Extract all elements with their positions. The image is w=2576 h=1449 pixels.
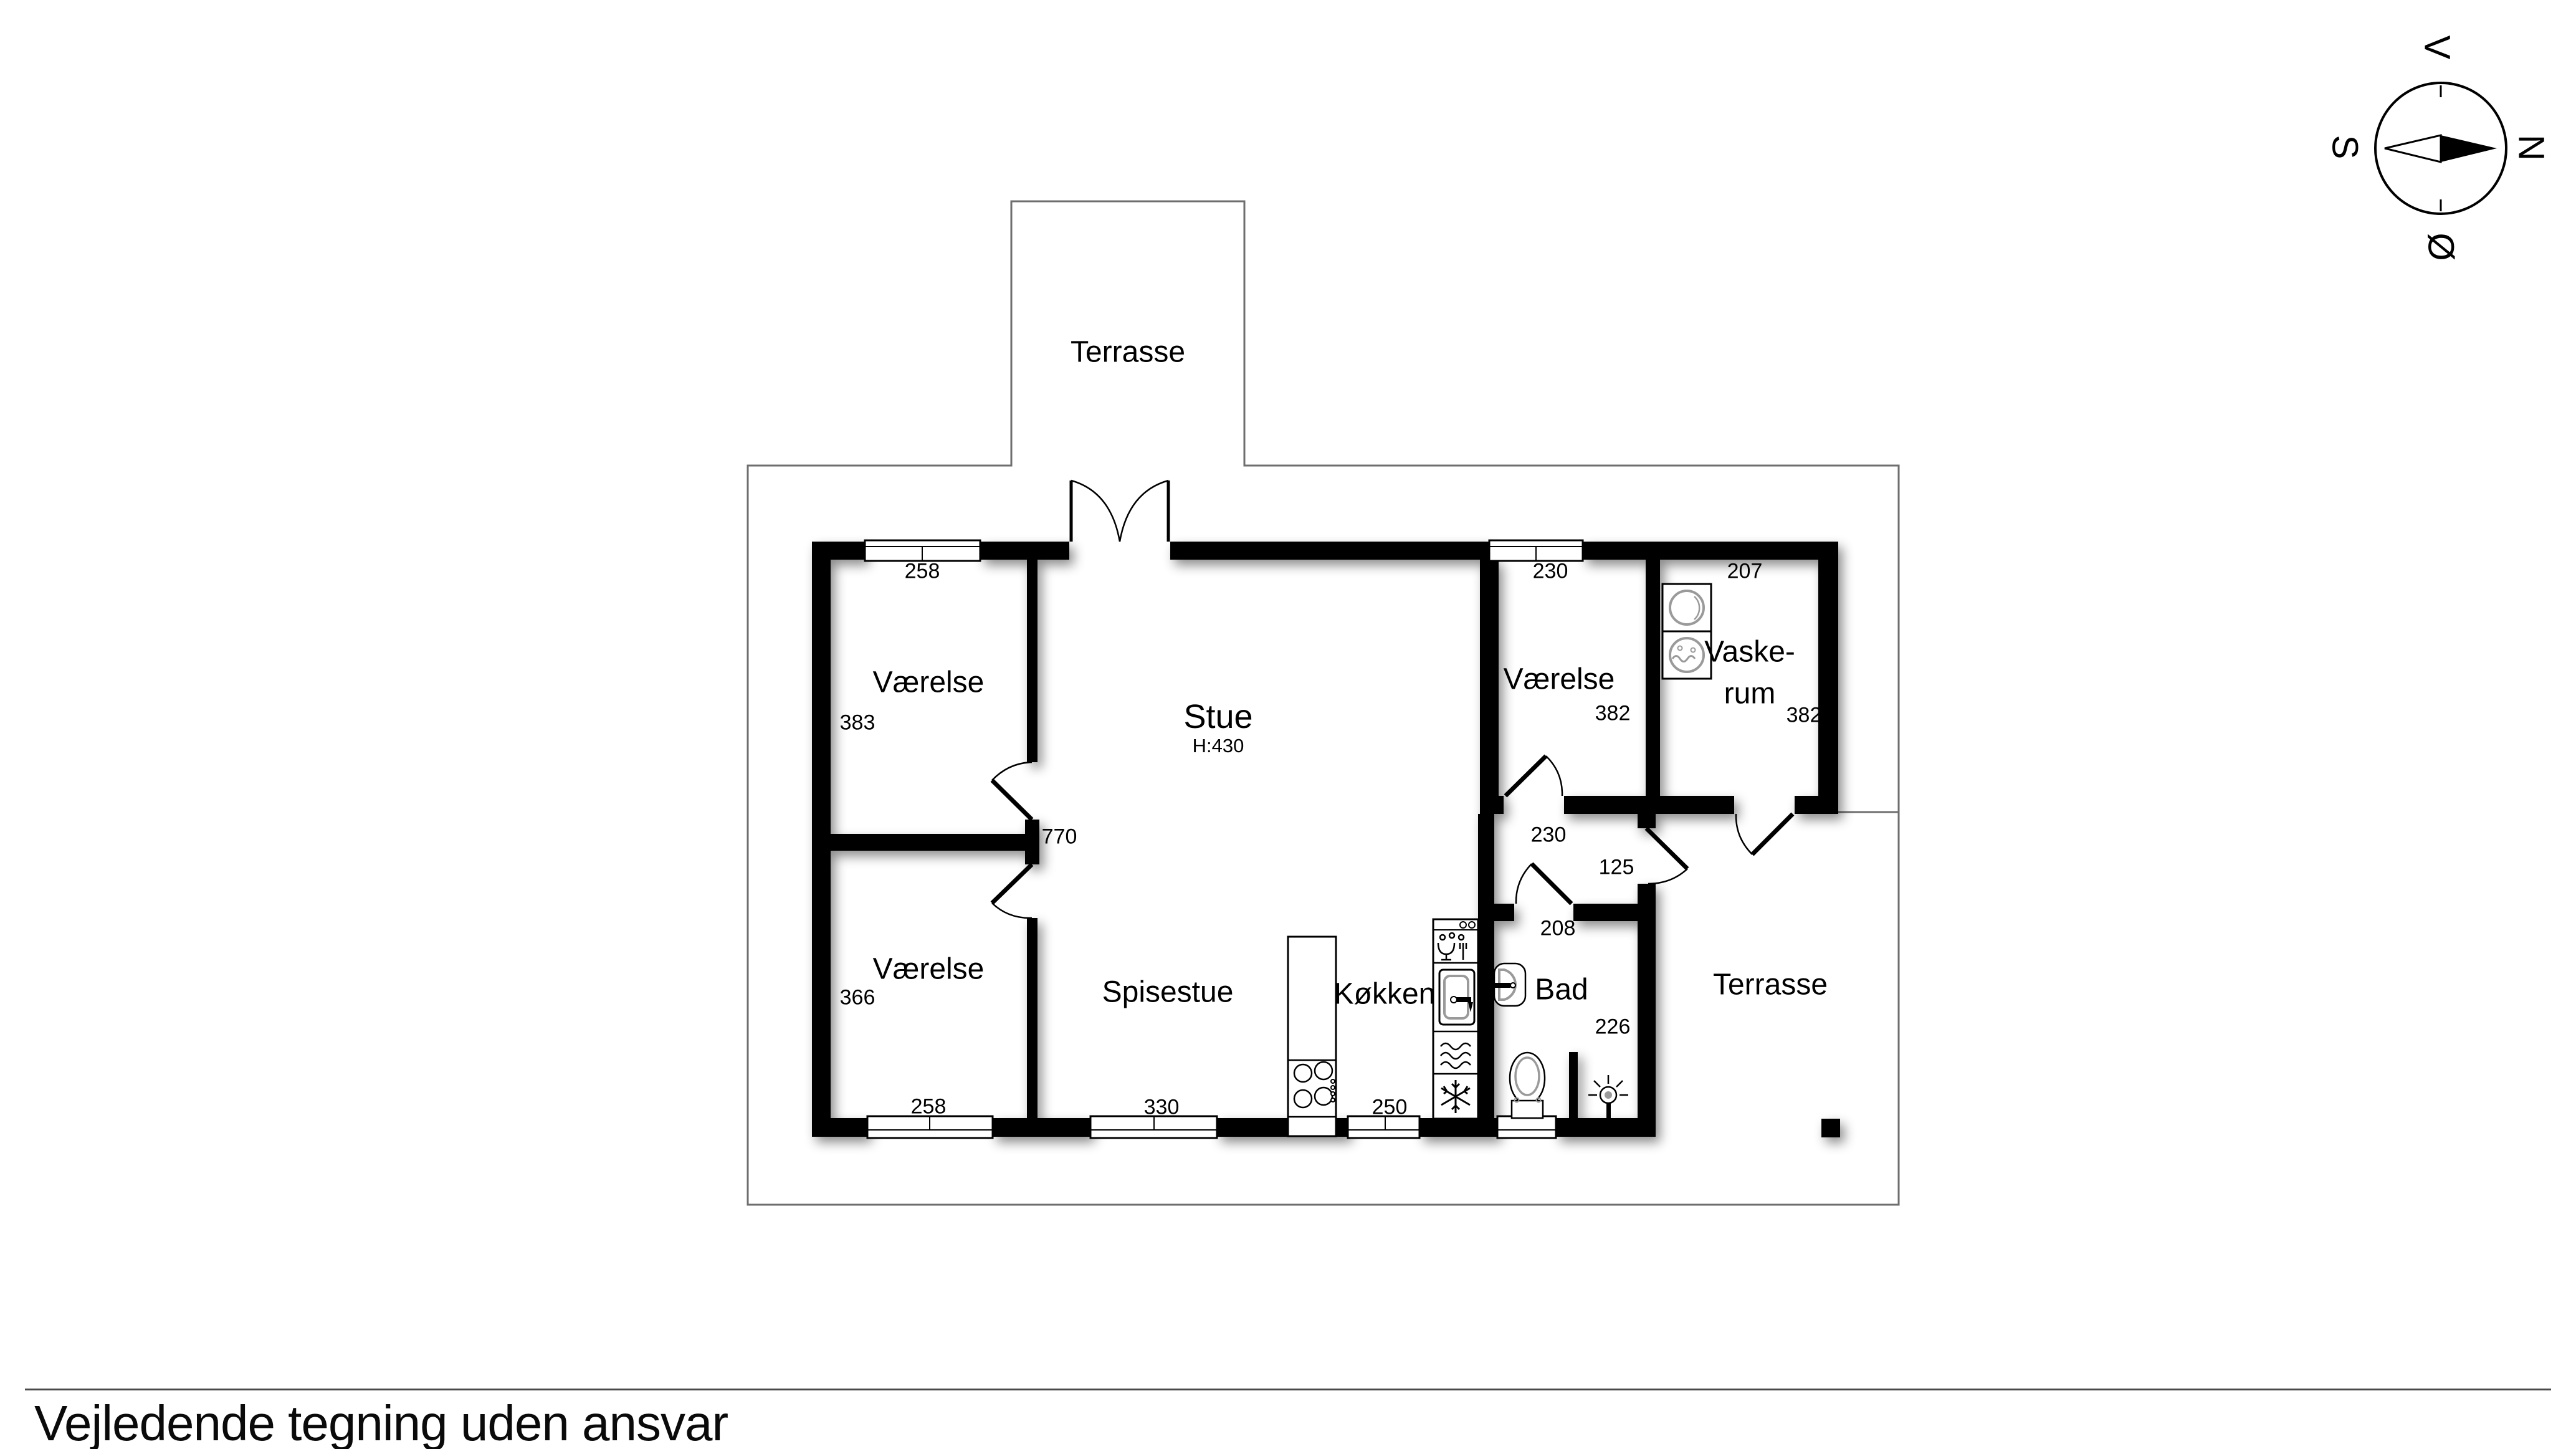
compass-label-north: N — [2511, 135, 2552, 161]
measure-382-laundry: 382 — [1787, 704, 1822, 728]
measure-226: 226 — [1595, 1015, 1631, 1040]
door-bath — [1516, 864, 1572, 904]
label-laundry-line2: rum — [1724, 677, 1776, 711]
footer-divider — [25, 1389, 2551, 1390]
label-bedroom-ne: Værelse — [1504, 662, 1615, 697]
label-terrace-top: Terrasse — [1071, 335, 1185, 370]
label-dining: Spisestue — [1102, 975, 1234, 1010]
measure-250: 250 — [1372, 1096, 1408, 1120]
measure-258-top: 258 — [905, 560, 940, 584]
measure-366: 366 — [840, 986, 875, 1010]
kitchen-island-icon — [1288, 937, 1336, 1136]
door-bedroom-sw — [992, 864, 1032, 918]
terrace-french-doors — [1071, 481, 1168, 542]
door-laundry — [1736, 814, 1793, 854]
measure-383: 383 — [840, 711, 875, 735]
label-bedroom-sw: Værelse — [873, 952, 985, 987]
dryer-icon — [1662, 584, 1711, 631]
shower-partition — [1569, 1052, 1578, 1118]
label-terrace-east: Terrasse — [1713, 968, 1828, 1002]
window-nw — [865, 540, 980, 561]
label-laundry-line1: Vaske- — [1704, 635, 1795, 669]
measure-330: 330 — [1144, 1096, 1180, 1120]
disclaimer-text: Vejledende tegning uden ansvar — [34, 1395, 728, 1449]
compass-label-west: V — [2416, 36, 2458, 60]
measure-258-bottom: 258 — [911, 1095, 947, 1119]
floor-plan-drawing — [0, 0, 2576, 1449]
measure-125: 125 — [1599, 856, 1634, 880]
compass-needle-north — [2441, 135, 2497, 162]
window-sw — [867, 1116, 993, 1138]
measure-207: 207 — [1727, 560, 1763, 584]
kitchen-appliance-column — [1433, 919, 1478, 1119]
compass-label-east: Ø — [2420, 232, 2462, 261]
floor-plan-page: Terrasse Værelse Stue H:430 Værelse Vask… — [0, 0, 2576, 1449]
label-bedroom-nw: Værelse — [873, 666, 985, 700]
terrace-post — [1821, 1119, 1840, 1137]
toilet-icon — [1510, 1053, 1545, 1118]
label-bath: Bad — [1535, 973, 1588, 1007]
kitchen-sink-icon — [1439, 970, 1474, 1025]
label-living: Stue — [1183, 697, 1252, 736]
window-bath — [1497, 1116, 1556, 1138]
door-hall-terrace — [1646, 828, 1687, 884]
label-ceiling-height: H:430 — [1193, 735, 1244, 757]
measure-208: 208 — [1540, 917, 1576, 941]
shower-icon — [1588, 1075, 1628, 1118]
door-bedroom-nw — [992, 762, 1032, 820]
window-ne — [1489, 540, 1583, 561]
compass-needle-south — [2385, 135, 2441, 162]
compass-rose — [2375, 83, 2506, 214]
measure-382-ne: 382 — [1595, 702, 1631, 726]
measure-230-top: 230 — [1533, 560, 1568, 584]
measure-770: 770 — [1042, 825, 1077, 849]
bathroom-sink-icon — [1494, 964, 1525, 1006]
door-bedroom-ne — [1505, 756, 1562, 796]
measure-230-hall: 230 — [1531, 823, 1567, 848]
compass-label-south: S — [2324, 135, 2366, 160]
label-kitchen: Køkken — [1334, 977, 1436, 1011]
